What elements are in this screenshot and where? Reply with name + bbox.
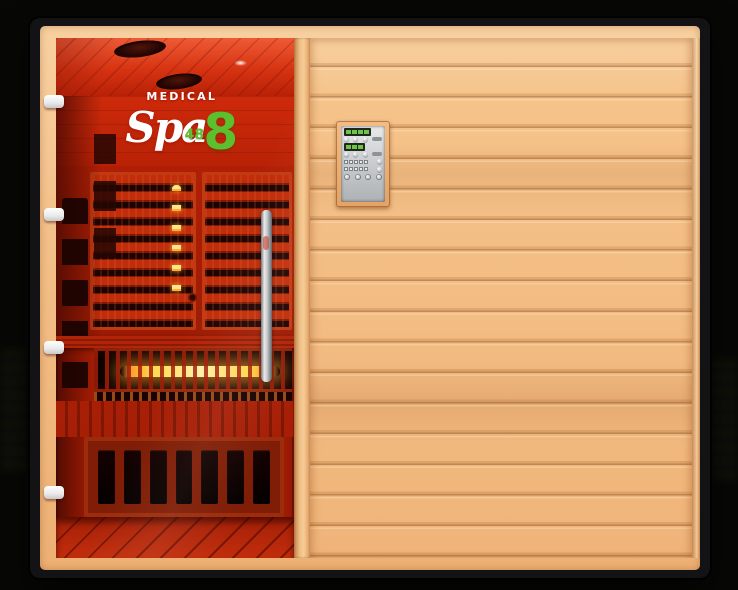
panel-button bbox=[353, 152, 358, 157]
side-heater bbox=[62, 198, 88, 410]
logo-8-text: 8 bbox=[203, 103, 238, 161]
brand-logo: MEDICAL Spa488 bbox=[125, 90, 238, 161]
panel-segment-row bbox=[344, 159, 382, 164]
panel-button bbox=[377, 167, 382, 172]
interior-floor bbox=[56, 517, 294, 558]
handle-reflection bbox=[263, 236, 269, 250]
panel-segment-row bbox=[344, 167, 382, 172]
side-heater bbox=[94, 134, 116, 274]
wood-wall bbox=[310, 38, 692, 558]
corner-post bbox=[692, 38, 700, 558]
under-bench-vent bbox=[150, 450, 167, 504]
under-bench-vent bbox=[227, 450, 244, 504]
product-photo-sauna: MEDICAL Spa488 bbox=[0, 0, 738, 590]
under-bench-vent bbox=[98, 450, 115, 504]
under-bench-vent bbox=[124, 450, 141, 504]
logo-brand-text: MEDICAL bbox=[125, 90, 238, 103]
segment-buttons bbox=[344, 167, 368, 171]
sauna-cabin: MEDICAL Spa488 bbox=[30, 18, 710, 578]
door-hinge-icon bbox=[44, 95, 64, 108]
panel-button bbox=[353, 137, 358, 142]
under-bench-vent bbox=[253, 450, 270, 504]
heater-chain-row bbox=[94, 392, 292, 401]
control-panel bbox=[336, 121, 390, 207]
logo-model-row: Spa488 bbox=[125, 127, 238, 146]
panel-button bbox=[363, 152, 368, 157]
bench-base-slats bbox=[56, 401, 294, 437]
lcd-display bbox=[344, 128, 371, 136]
panel-button bbox=[363, 137, 368, 142]
under-bench-vent bbox=[176, 450, 193, 504]
panel-button bbox=[344, 152, 349, 157]
segment-buttons bbox=[344, 160, 368, 164]
door-hinge-icon bbox=[44, 486, 64, 499]
background-artifact-left bbox=[0, 350, 26, 470]
heater-glow-column bbox=[172, 185, 181, 295]
logo-48-text: 48 bbox=[185, 127, 204, 143]
panel-switch bbox=[372, 137, 382, 141]
door-hinge-icon bbox=[44, 208, 64, 221]
panel-knob bbox=[344, 174, 350, 180]
door-frame-stile bbox=[294, 38, 310, 558]
bench-top bbox=[56, 336, 294, 348]
panel-knob bbox=[355, 174, 361, 180]
control-panel-face bbox=[341, 126, 385, 202]
lcd-display bbox=[344, 143, 365, 151]
panel-button bbox=[377, 159, 382, 164]
panel-display-row bbox=[344, 129, 382, 134]
panel-knob bbox=[376, 174, 382, 180]
door-handle bbox=[261, 210, 272, 382]
under-bench-panel bbox=[84, 437, 284, 517]
panel-switch bbox=[372, 152, 382, 156]
panel-knob bbox=[365, 174, 371, 180]
panel-button-row bbox=[344, 137, 382, 142]
glass-door: MEDICAL Spa488 bbox=[56, 38, 294, 558]
door-hinge-icon bbox=[44, 341, 64, 354]
panel-display-row bbox=[344, 144, 382, 149]
ceiling-light-icon bbox=[234, 60, 247, 66]
rear-heater-panel bbox=[202, 172, 292, 330]
panel-button-row bbox=[344, 152, 382, 157]
panel-knob-row bbox=[344, 174, 382, 180]
under-bench-vent bbox=[201, 450, 218, 504]
background-artifact-right bbox=[712, 360, 738, 480]
panel-button bbox=[344, 137, 349, 142]
wall-sensor-icon bbox=[188, 293, 197, 302]
